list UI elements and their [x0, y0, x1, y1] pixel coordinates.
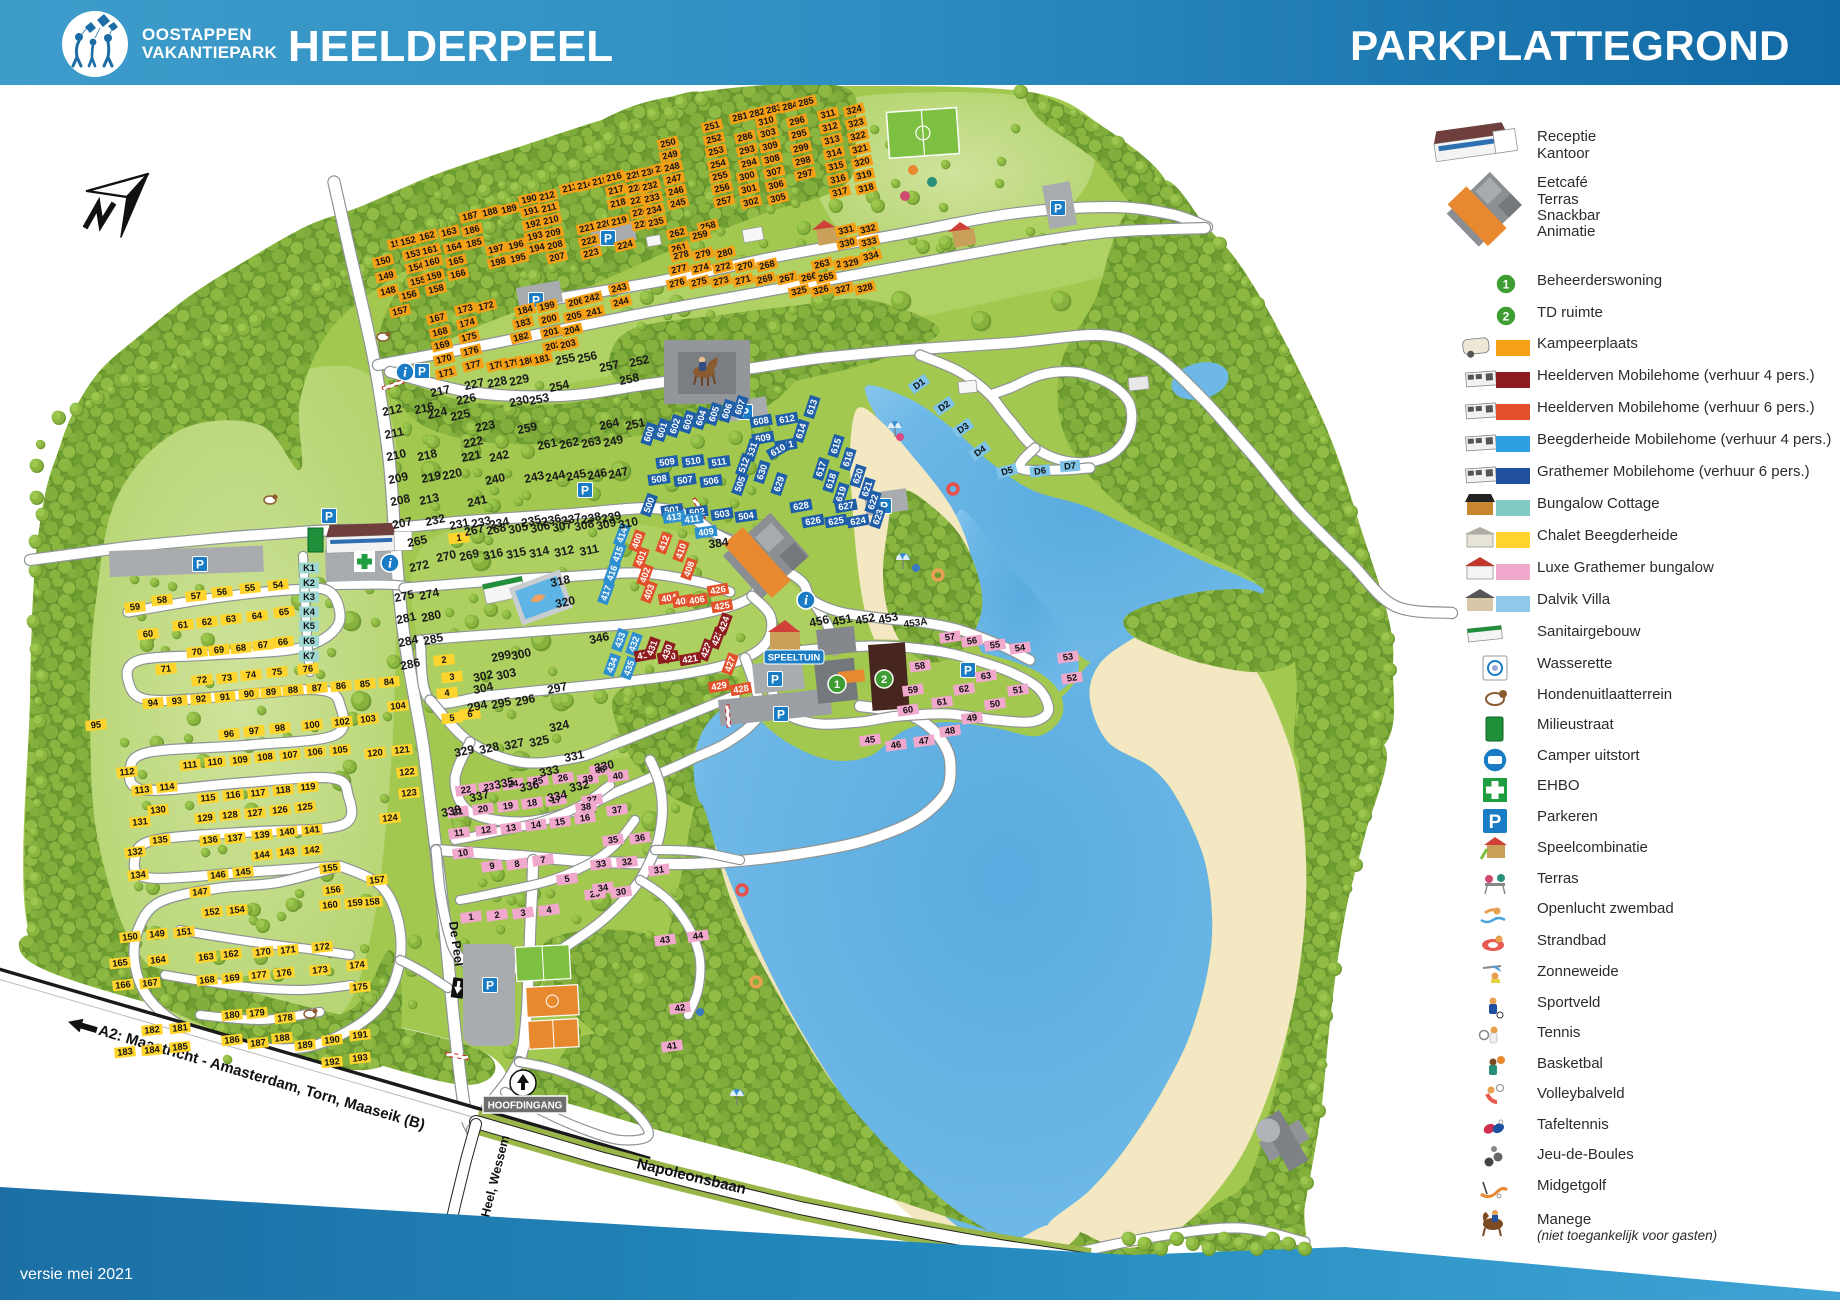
svg-text:76: 76 — [302, 663, 313, 674]
svg-text:P: P — [771, 672, 779, 686]
svg-text:180: 180 — [224, 1009, 240, 1021]
svg-text:192: 192 — [324, 1056, 340, 1068]
svg-text:Chalet Beegderheide: Chalet Beegderheide — [1537, 527, 1678, 544]
svg-text:55: 55 — [244, 582, 255, 593]
svg-text:62: 62 — [201, 616, 212, 627]
svg-text:121: 121 — [394, 744, 410, 756]
svg-text:K5: K5 — [303, 621, 315, 631]
svg-text:183: 183 — [117, 1046, 133, 1058]
svg-text:137: 137 — [227, 832, 243, 844]
svg-text:160: 160 — [322, 899, 338, 911]
svg-text:18: 18 — [526, 797, 538, 808]
svg-text:174: 174 — [349, 959, 366, 971]
svg-text:159: 159 — [347, 897, 363, 909]
svg-text:189: 189 — [297, 1039, 313, 1051]
svg-text:40: 40 — [612, 770, 624, 781]
svg-text:45: 45 — [864, 734, 876, 745]
svg-text:2: 2 — [881, 674, 887, 686]
svg-text:Grathemer Mobilehome (verhuur: Grathemer Mobilehome (verhuur 6 pers.) — [1537, 463, 1810, 480]
svg-text:87: 87 — [311, 682, 322, 693]
svg-text:179: 179 — [249, 1007, 265, 1019]
svg-text:i: i — [388, 557, 392, 572]
svg-text:Terras: Terras — [1537, 870, 1579, 887]
svg-text:Parkeren: Parkeren — [1537, 808, 1598, 825]
svg-text:178: 178 — [277, 1012, 293, 1024]
svg-text:Kantoor: Kantoor — [1537, 145, 1590, 162]
svg-text:63: 63 — [980, 670, 992, 681]
svg-text:143: 143 — [279, 846, 295, 858]
svg-text:P: P — [325, 509, 333, 523]
svg-text:168: 168 — [199, 974, 215, 986]
svg-text:(niet toegankelijk voor gasten: (niet toegankelijk voor gasten) — [1537, 1228, 1717, 1243]
svg-text:P: P — [1054, 201, 1062, 215]
svg-text:D6: D6 — [1033, 465, 1046, 477]
svg-text:89: 89 — [265, 686, 276, 697]
svg-text:55: 55 — [989, 639, 1001, 650]
svg-text:1: 1 — [1503, 278, 1510, 292]
svg-text:versie mei 2021: versie mei 2021 — [20, 1266, 133, 1283]
svg-text:Kampeerplaats: Kampeerplaats — [1537, 335, 1638, 352]
svg-text:150: 150 — [122, 931, 138, 943]
svg-text:50: 50 — [989, 698, 1001, 709]
svg-text:86: 86 — [335, 680, 346, 691]
svg-text:145: 145 — [235, 866, 251, 878]
svg-text:HOOFDINGANG: HOOFDINGANG — [488, 1101, 563, 1112]
svg-text:125: 125 — [297, 801, 313, 813]
svg-text:88: 88 — [287, 684, 298, 695]
svg-text:120: 120 — [367, 747, 383, 759]
svg-text:38: 38 — [580, 801, 592, 812]
svg-text:123: 123 — [401, 787, 417, 799]
svg-text:118: 118 — [275, 784, 291, 796]
svg-text:PARKPLATTEGROND: PARKPLATTEGROND — [1350, 22, 1790, 69]
svg-text:Animatie: Animatie — [1537, 223, 1595, 240]
svg-text:OOSTAPPEN: OOSTAPPEN — [142, 25, 252, 44]
svg-text:511: 511 — [711, 456, 727, 468]
svg-text:184: 184 — [144, 1044, 161, 1056]
svg-text:Luxe Grathemer bungalow: Luxe Grathemer bungalow — [1537, 559, 1714, 576]
svg-text:Volleybalveld: Volleybalveld — [1537, 1085, 1625, 1102]
svg-text:P: P — [1489, 812, 1502, 833]
svg-text:59: 59 — [907, 684, 919, 695]
svg-text:85: 85 — [359, 678, 370, 689]
svg-text:134: 134 — [130, 869, 147, 881]
svg-text:VAKANTIEPARK: VAKANTIEPARK — [142, 43, 277, 62]
svg-text:Zonneweide: Zonneweide — [1537, 963, 1619, 980]
svg-text:42: 42 — [674, 1002, 686, 1013]
svg-text:171: 171 — [280, 944, 296, 956]
svg-text:100: 100 — [304, 719, 320, 731]
svg-text:46: 46 — [890, 739, 902, 750]
svg-text:Jeu-de-Boules: Jeu-de-Boules — [1537, 1146, 1634, 1163]
svg-text:56: 56 — [216, 586, 227, 597]
svg-text:167: 167 — [142, 977, 158, 989]
svg-text:Hondenuitlaatterrein: Hondenuitlaatterrein — [1537, 686, 1672, 703]
svg-text:52: 52 — [1066, 672, 1078, 683]
svg-text:i: i — [403, 366, 407, 381]
svg-text:Beheerderswoning: Beheerderswoning — [1537, 272, 1662, 289]
svg-text:Sanitairgebouw: Sanitairgebouw — [1537, 623, 1641, 640]
svg-text:127: 127 — [247, 807, 263, 819]
svg-text:47: 47 — [918, 735, 930, 746]
svg-text:169: 169 — [224, 972, 240, 984]
svg-text:156: 156 — [325, 884, 341, 896]
svg-text:115: 115 — [200, 792, 216, 804]
svg-text:D7: D7 — [1064, 461, 1077, 472]
svg-text:170: 170 — [255, 946, 271, 958]
svg-text:70: 70 — [191, 646, 202, 657]
svg-text:124: 124 — [382, 812, 399, 824]
svg-text:141: 141 — [304, 824, 320, 836]
svg-text:191: 191 — [352, 1029, 368, 1041]
svg-text:P: P — [486, 978, 494, 992]
svg-text:53: 53 — [1062, 651, 1074, 662]
svg-text:11: 11 — [453, 827, 464, 838]
svg-text:122: 122 — [399, 766, 415, 778]
svg-text:165: 165 — [112, 957, 128, 969]
svg-text:60: 60 — [142, 628, 153, 639]
svg-text:187: 187 — [250, 1037, 266, 1049]
svg-text:509: 509 — [659, 456, 676, 468]
svg-text:Tafeltennis: Tafeltennis — [1537, 1116, 1609, 1133]
svg-text:Snackbar: Snackbar — [1537, 207, 1600, 224]
svg-text:136: 136 — [202, 834, 218, 846]
svg-text:92: 92 — [195, 693, 206, 704]
svg-text:142: 142 — [304, 844, 320, 856]
svg-text:71: 71 — [160, 663, 171, 674]
svg-text:182: 182 — [144, 1024, 160, 1036]
svg-text:164: 164 — [150, 954, 167, 966]
svg-text:33: 33 — [595, 858, 607, 869]
svg-text:Strandbad: Strandbad — [1537, 932, 1606, 949]
svg-text:Receptie: Receptie — [1537, 128, 1596, 145]
svg-text:162: 162 — [223, 948, 239, 960]
svg-text:30: 30 — [615, 886, 627, 897]
svg-text:112: 112 — [119, 766, 135, 778]
svg-text:166: 166 — [115, 979, 131, 991]
svg-text:61: 61 — [936, 696, 948, 707]
svg-text:Openlucht zwembad: Openlucht zwembad — [1537, 900, 1674, 917]
svg-text:HEELDERPEEL: HEELDERPEEL — [288, 22, 613, 71]
svg-text:54: 54 — [272, 579, 284, 590]
svg-text:Terras: Terras — [1537, 191, 1579, 208]
svg-text:190: 190 — [324, 1034, 340, 1046]
svg-text:Eetcafé: Eetcafé — [1537, 174, 1588, 191]
svg-text:Camper uitstort: Camper uitstort — [1537, 747, 1640, 764]
svg-text:135: 135 — [152, 834, 168, 846]
svg-text:56: 56 — [966, 635, 978, 646]
svg-text:32: 32 — [621, 856, 633, 867]
svg-text:119: 119 — [300, 781, 316, 793]
svg-text:114: 114 — [159, 781, 176, 793]
svg-text:P: P — [964, 663, 972, 677]
svg-text:175: 175 — [352, 981, 368, 993]
svg-text:P: P — [581, 483, 589, 497]
svg-text:144: 144 — [254, 849, 271, 861]
svg-text:Midgetgolf: Midgetgolf — [1537, 1177, 1607, 1194]
svg-text:158: 158 — [364, 896, 380, 908]
svg-text:48: 48 — [944, 725, 956, 736]
svg-text:13: 13 — [505, 822, 517, 833]
svg-text:57: 57 — [944, 631, 956, 642]
svg-text:16: 16 — [579, 812, 591, 823]
svg-text:P: P — [777, 707, 785, 721]
svg-text:90: 90 — [243, 688, 254, 699]
svg-text:132: 132 — [127, 846, 143, 858]
svg-text:185: 185 — [172, 1041, 188, 1053]
svg-text:75: 75 — [271, 666, 282, 677]
svg-text:147: 147 — [192, 886, 208, 898]
svg-text:151: 151 — [176, 926, 192, 938]
svg-text:Heelderven Mobilehome (verhuur: Heelderven Mobilehome (verhuur 4 pers.) — [1537, 367, 1815, 384]
svg-text:104: 104 — [390, 700, 407, 712]
svg-text:177: 177 — [251, 969, 267, 981]
svg-text:TD ruimte: TD ruimte — [1537, 304, 1603, 321]
svg-text:507: 507 — [677, 474, 694, 486]
svg-text:Manege: Manege — [1537, 1211, 1591, 1228]
svg-text:P: P — [196, 557, 204, 571]
svg-text:K2: K2 — [303, 578, 315, 588]
svg-text:P: P — [604, 231, 612, 245]
svg-text:K6: K6 — [303, 636, 315, 646]
svg-text:84: 84 — [383, 676, 395, 687]
svg-text:57: 57 — [190, 590, 201, 601]
svg-text:Heelderven Mobilehome (verhuur: Heelderven Mobilehome (verhuur 6 pers.) — [1537, 399, 1815, 416]
svg-text:49: 49 — [966, 712, 978, 723]
svg-text:131: 131 — [132, 816, 148, 828]
svg-text:67: 67 — [257, 639, 268, 650]
svg-text:126: 126 — [272, 804, 288, 816]
svg-text:15: 15 — [554, 816, 566, 827]
svg-text:58: 58 — [914, 660, 926, 671]
svg-text:102: 102 — [334, 716, 350, 728]
svg-text:19: 19 — [502, 800, 514, 811]
svg-text:74: 74 — [245, 669, 257, 680]
svg-text:108: 108 — [257, 751, 273, 763]
svg-text:2: 2 — [441, 655, 447, 665]
svg-text:139: 139 — [254, 829, 270, 841]
svg-text:31: 31 — [653, 864, 665, 875]
svg-text:72: 72 — [196, 674, 207, 685]
svg-text:Bungalow Cottage: Bungalow Cottage — [1537, 495, 1660, 512]
svg-text:K3: K3 — [303, 592, 315, 602]
svg-text:68: 68 — [235, 642, 246, 653]
svg-text:109: 109 — [232, 754, 248, 766]
svg-text:i: i — [804, 594, 808, 609]
svg-text:Speelcombinatie: Speelcombinatie — [1537, 839, 1648, 856]
svg-text:20: 20 — [477, 803, 489, 814]
svg-text:510: 510 — [685, 455, 702, 467]
svg-text:64: 64 — [251, 610, 263, 621]
svg-text:157: 157 — [369, 874, 385, 886]
svg-text:96: 96 — [223, 728, 234, 739]
svg-text:65: 65 — [278, 606, 289, 617]
svg-text:58: 58 — [156, 594, 167, 605]
svg-text:106: 106 — [307, 746, 323, 758]
svg-text:110: 110 — [207, 756, 223, 768]
svg-text:193: 193 — [352, 1052, 368, 1064]
svg-text:98: 98 — [274, 722, 285, 733]
svg-text:60: 60 — [902, 704, 914, 715]
svg-text:128: 128 — [222, 809, 238, 821]
svg-text:146: 146 — [210, 869, 226, 881]
svg-text:173: 173 — [312, 964, 328, 976]
svg-text:94: 94 — [147, 697, 159, 708]
svg-text:117: 117 — [250, 787, 266, 799]
svg-text:51: 51 — [1012, 684, 1024, 695]
svg-text:K1: K1 — [303, 563, 315, 573]
svg-text:K4: K4 — [303, 607, 316, 617]
svg-text:116: 116 — [225, 789, 241, 801]
svg-text:3: 3 — [449, 672, 455, 682]
svg-text:10: 10 — [457, 847, 469, 858]
svg-text:155: 155 — [322, 862, 338, 874]
svg-text:1: 1 — [456, 533, 462, 543]
svg-text:Beegderheide Mobilehome (verhu: Beegderheide Mobilehome (verhuur 4 pers.… — [1537, 431, 1831, 448]
svg-text:152: 152 — [204, 906, 220, 918]
svg-text:149: 149 — [149, 928, 165, 940]
svg-text:172: 172 — [314, 941, 330, 953]
svg-text:130: 130 — [150, 804, 166, 816]
svg-text:186: 186 — [224, 1034, 240, 1046]
svg-text:SPEELTUIN: SPEELTUIN — [768, 653, 821, 664]
svg-text:91: 91 — [219, 691, 230, 702]
svg-text:413: 413 — [666, 511, 683, 523]
svg-text:73: 73 — [221, 672, 232, 683]
svg-text:12: 12 — [480, 824, 492, 835]
svg-text:63: 63 — [225, 613, 236, 624]
svg-text:129: 129 — [197, 812, 213, 824]
svg-text:105: 105 — [332, 744, 348, 756]
svg-text:411: 411 — [684, 513, 700, 525]
svg-text:113: 113 — [134, 784, 150, 796]
svg-text:2: 2 — [1503, 310, 1510, 324]
svg-text:43: 43 — [659, 934, 671, 945]
svg-text:163: 163 — [198, 951, 214, 963]
svg-text:188: 188 — [274, 1032, 290, 1044]
svg-text:384: 384 — [708, 535, 730, 552]
svg-text:111: 111 — [182, 759, 197, 770]
svg-text:Dalvik Villa: Dalvik Villa — [1537, 591, 1611, 608]
svg-text:62: 62 — [958, 683, 970, 694]
svg-text:107: 107 — [282, 749, 298, 761]
svg-text:EHBO: EHBO — [1537, 777, 1580, 794]
svg-text:Basketbal: Basketbal — [1537, 1055, 1603, 1072]
svg-text:503: 503 — [714, 508, 731, 520]
svg-text:93: 93 — [171, 695, 182, 706]
svg-text:176: 176 — [276, 967, 292, 979]
svg-text:66: 66 — [277, 636, 288, 647]
svg-text:37: 37 — [611, 804, 623, 815]
svg-text:36: 36 — [634, 832, 646, 843]
svg-text:Milieustraat: Milieustraat — [1537, 716, 1615, 733]
svg-text:97: 97 — [248, 725, 259, 736]
svg-text:41: 41 — [666, 1040, 678, 1051]
svg-text:P: P — [418, 364, 426, 378]
svg-text:35: 35 — [607, 834, 619, 845]
svg-text:69: 69 — [213, 644, 224, 655]
svg-text:154: 154 — [229, 904, 246, 916]
svg-text:61: 61 — [177, 619, 188, 630]
svg-text:Wasserette: Wasserette — [1537, 655, 1612, 672]
svg-text:506: 506 — [703, 475, 720, 487]
svg-text:508: 508 — [651, 473, 668, 485]
svg-text:Tennis: Tennis — [1537, 1024, 1580, 1041]
svg-text:181: 181 — [172, 1022, 188, 1034]
svg-text:5: 5 — [449, 713, 455, 723]
svg-text:59: 59 — [129, 601, 140, 612]
svg-text:Sportveld: Sportveld — [1537, 994, 1600, 1011]
svg-text:140: 140 — [279, 826, 295, 838]
svg-text:K7: K7 — [303, 651, 315, 661]
svg-text:1: 1 — [834, 679, 840, 691]
svg-text:103: 103 — [360, 713, 376, 725]
svg-text:95: 95 — [90, 719, 101, 730]
